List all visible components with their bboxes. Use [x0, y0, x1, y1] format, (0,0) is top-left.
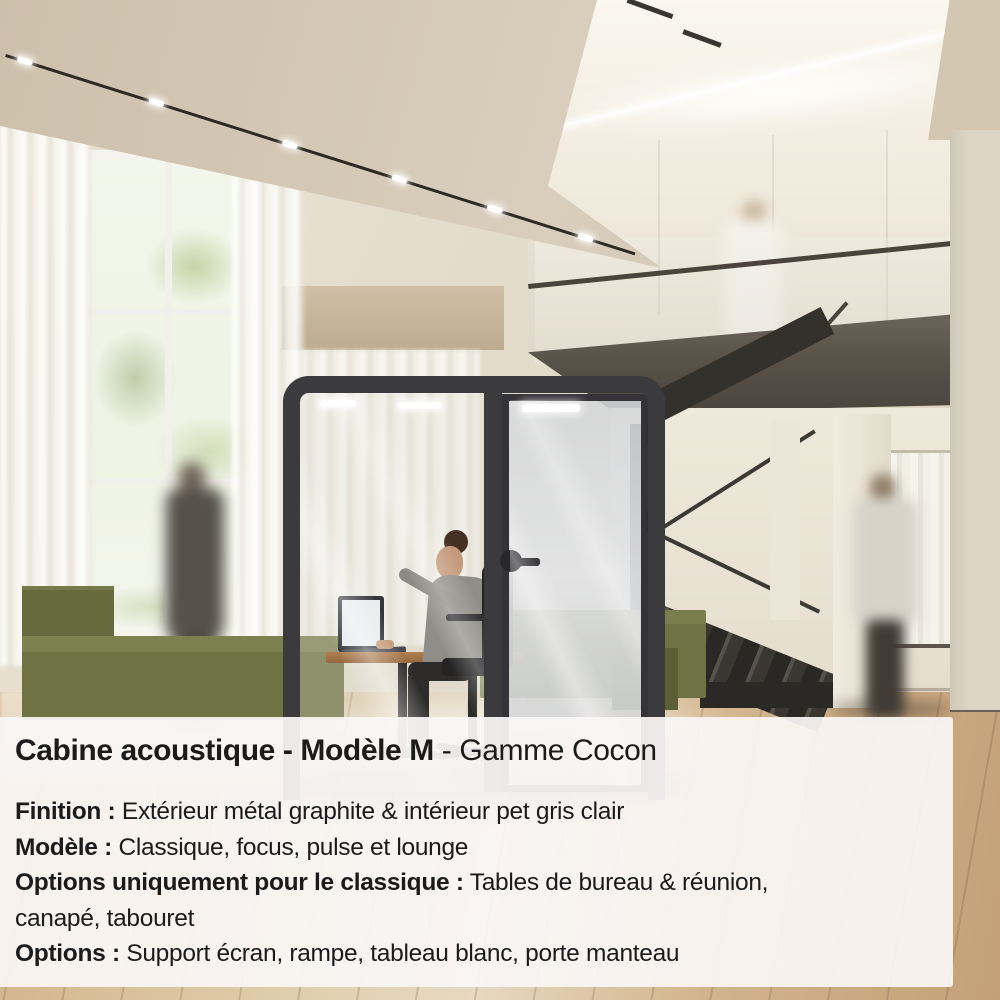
product-title: Cabine acoustique - Modèle M - Gamme Coc…	[15, 732, 935, 769]
spec-value: Tables de bureau & réunion,	[464, 869, 768, 896]
product-title-regular: - Gamme Cocon	[434, 734, 657, 767]
curtain-left	[0, 118, 92, 666]
window-mullion-horizontal-1	[85, 309, 253, 315]
spec-value: Support écran, rampe, tableau blanc, por…	[120, 940, 679, 967]
spec-line-finition: Finition : Extérieur métal graphite & in…	[15, 794, 935, 830]
roman-shade-valance	[282, 286, 504, 350]
blurred-person-right	[848, 468, 930, 720]
stair-base-block	[700, 682, 835, 708]
spec-line-options: Options : Support écran, rampe, tableau …	[15, 936, 935, 972]
spec-label: Finition :	[15, 798, 115, 825]
spec-label: Options :	[15, 940, 120, 967]
spec-value: Classique, focus, pulse et lounge	[112, 834, 468, 861]
spec-line-modele: Modèle : Classique, focus, pulse et loun…	[15, 830, 935, 866]
spec-value: Extérieur métal graphite & intérieur pet…	[115, 798, 624, 825]
spec-value: canapé, tabouret	[15, 905, 194, 932]
product-image-card: Cabine acoustique - Modèle M - Gamme Coc…	[0, 0, 1000, 1000]
hall-column-small	[770, 420, 800, 620]
spec-label: Modèle :	[15, 834, 112, 861]
caption-panel: Cabine acoustique - Modèle M - Gamme Coc…	[0, 717, 953, 987]
spec-label: Options uniquement pour le classique :	[15, 869, 464, 896]
spec-line-options-classique-wrap: canapé, tabouret	[15, 901, 935, 937]
product-title-bold: Cabine acoustique - Modèle M	[15, 734, 434, 767]
spec-line-options-classique: Options uniquement pour le classique : T…	[15, 865, 935, 901]
right-near-wall	[950, 130, 1000, 710]
